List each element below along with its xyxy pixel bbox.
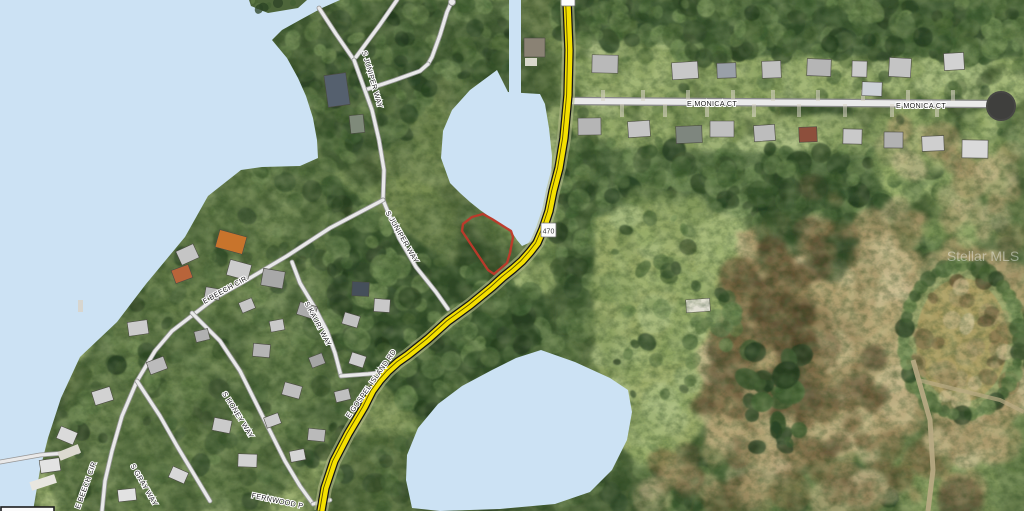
svg-text:Stellar MLS: Stellar MLS (947, 248, 1019, 264)
svg-text:470: 470 (543, 229, 555, 236)
svg-text:E MONICA CT: E MONICA CT (896, 101, 946, 110)
svg-text:E MONICA CT: E MONICA CT (687, 99, 737, 108)
